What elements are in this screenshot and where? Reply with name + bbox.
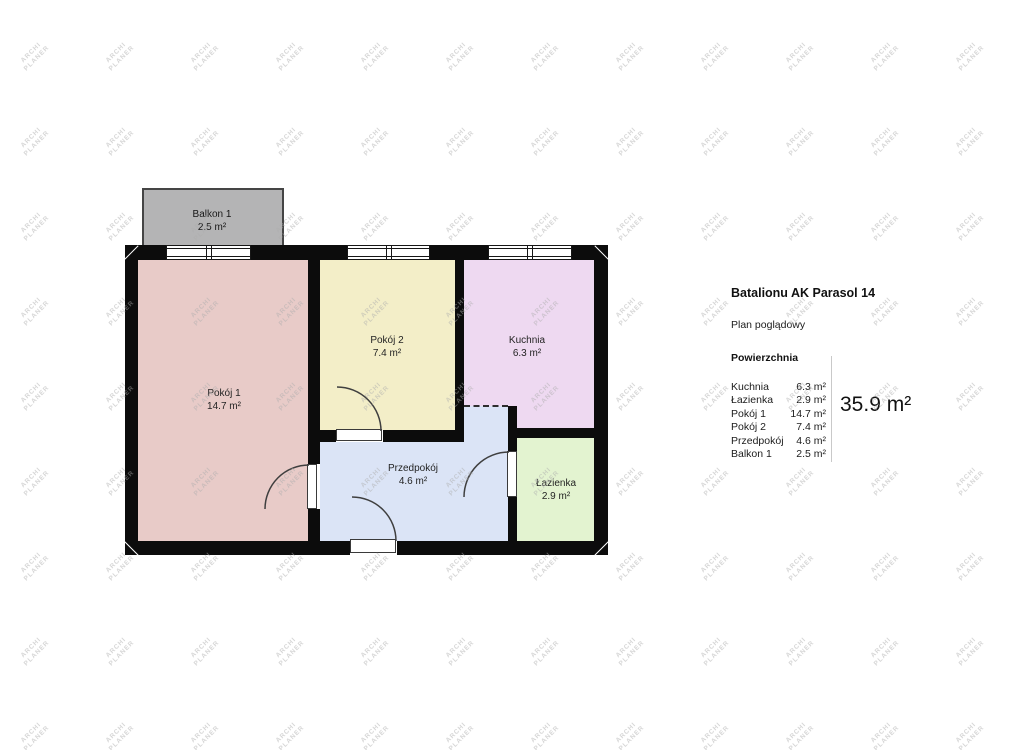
watermark: ARCHIPLANER [948,375,990,417]
watermark: ARCHIPLANER [353,630,395,672]
watermark: ARCHIPLANER [693,715,735,750]
window-mullion [211,246,212,259]
balcony-area-value: 2.5 m² [147,222,277,235]
window-frame-line [489,248,571,249]
watermark: ARCHIPLANER [608,375,650,417]
window-frame-line [348,248,429,249]
watermark: ARCHIPLANER [948,715,990,750]
watermark: ARCHIPLANER [13,35,55,77]
watermark: ARCHIPLANER [778,205,820,247]
watermark: ARCHIPLANER [948,290,990,332]
room-area: 4.6 m² [348,476,478,489]
door-leaf-pokoj2 [336,429,382,441]
watermark: ARCHIPLANER [268,35,310,77]
watermark: ARCHIPLANER [183,630,225,672]
room-name: Łazienka [491,478,621,491]
watermark: ARCHIPLANER [268,715,310,750]
area-table-row: Balkon 1 2.5 m² [731,448,826,461]
watermark: ARCHIPLANER [778,630,820,672]
watermark: ARCHIPLANER [863,545,905,587]
balcony-name: Balkon 1 [147,209,277,222]
panel-vertical-divider [831,356,832,462]
area-table-row: Kuchnia 6.3 m² [731,381,826,394]
watermark: ARCHIPLANER [948,460,990,502]
watermark: ARCHIPLANER [13,460,55,502]
watermark: ARCHIPLANER [948,205,990,247]
window-mullion [527,246,528,259]
watermark: ARCHIPLANER [608,120,650,162]
watermark: ARCHIPLANER [523,205,565,247]
label-kuchnia: Kuchnia 6.3 m² [462,335,592,360]
watermark: ARCHIPLANER [693,630,735,672]
label-przedpokoj: Przedpokój 4.6 m² [348,463,478,488]
watermark: ARCHIPLANER [863,715,905,750]
watermark: ARCHIPLANER [268,120,310,162]
wall-kuchnia-lazienka [508,428,594,438]
watermark: ARCHIPLANER [778,120,820,162]
label-lazienka: Łazienka 2.9 m² [491,478,621,503]
door-leaf-entrance [350,539,396,553]
listing-title: Batalionu AK Parasol 14 [731,286,875,300]
room-area: 7.4 m² [322,348,452,361]
floorplan-page: Balkon 1 2.5 m² [0,0,1024,750]
watermark: ARCHIPLANER [183,35,225,77]
watermark: ARCHIPLANER [778,35,820,77]
watermark: ARCHIPLANER [863,120,905,162]
area-row-value: 14.7 m² [790,408,826,421]
total-area-value: 35.9 m² [840,393,911,417]
area-table-row: Pokój 2 7.4 m² [731,421,826,434]
watermark: ARCHIPLANER [438,35,480,77]
watermark: ARCHIPLANER [608,205,650,247]
room-name: Pokój 1 [159,388,289,401]
area-row-name: Przedpokój [731,435,784,448]
watermark: ARCHIPLANER [353,715,395,750]
watermark: ARCHIPLANER [778,545,820,587]
watermark: ARCHIPLANER [523,715,565,750]
area-row-name: Pokój 1 [731,408,766,421]
watermark: ARCHIPLANER [353,205,395,247]
watermark: ARCHIPLANER [863,460,905,502]
watermark: ARCHIPLANER [98,630,140,672]
watermark: ARCHIPLANER [438,120,480,162]
watermark: ARCHIPLANER [98,120,140,162]
watermark: ARCHIPLANER [863,35,905,77]
label-pokoj2: Pokój 2 7.4 m² [322,335,452,360]
watermark: ARCHIPLANER [693,545,735,587]
watermark: ARCHIPLANER [183,715,225,750]
room-area: 2.9 m² [491,491,621,504]
watermark: ARCHIPLANER [523,630,565,672]
room-name: Pokój 2 [322,335,452,348]
area-row-value: 6.3 m² [796,381,826,394]
area-row-name: Balkon 1 [731,448,772,461]
watermark: ARCHIPLANER [13,290,55,332]
watermark: ARCHIPLANER [608,35,650,77]
window-frame-line [348,256,429,257]
room-przedpokoj-notch-fill [464,406,508,446]
watermark: ARCHIPLANER [98,35,140,77]
room-area: 14.7 m² [159,401,289,414]
area-table-row: Łazienka 2.9 m² [731,394,826,407]
watermark: ARCHIPLANER [523,120,565,162]
watermark: ARCHIPLANER [693,460,735,502]
watermark: ARCHIPLANER [948,120,990,162]
balcony-label: Balkon 1 2.5 m² [147,209,277,234]
watermark: ARCHIPLANER [608,290,650,332]
watermark: ARCHIPLANER [693,290,735,332]
door-leaf-pokoj1 [307,464,317,509]
label-pokoj1: Pokój 1 14.7 m² [159,388,289,413]
area-row-value: 2.9 m² [796,394,826,407]
watermark: ARCHIPLANER [863,630,905,672]
wall-left [125,245,138,555]
area-row-name: Kuchnia [731,381,769,394]
window-pokoj1 [166,245,251,260]
area-row-value: 2.5 m² [796,448,826,461]
watermark: ARCHIPLANER [948,630,990,672]
watermark: ARCHIPLANER [693,120,735,162]
area-table-row: Przedpokój 4.6 m² [731,435,826,448]
watermark: ARCHIPLANER [353,120,395,162]
watermark: ARCHIPLANER [778,715,820,750]
watermark: ARCHIPLANER [438,630,480,672]
watermark: ARCHIPLANER [693,35,735,77]
room-name: Kuchnia [462,335,592,348]
window-mullion [206,246,207,259]
room-area: 6.3 m² [462,348,592,361]
watermark: ARCHIPLANER [438,205,480,247]
watermark: ARCHIPLANER [13,205,55,247]
open-passage-dashed-line [464,405,508,407]
area-section-header: Powierzchnia [731,352,798,364]
wall-pokoj2-bottom [308,430,464,442]
wall-right [594,245,608,555]
window-mullion [532,246,533,259]
watermark: ARCHIPLANER [98,715,140,750]
watermark: ARCHIPLANER [13,120,55,162]
room-przedpokoj-fill [320,442,508,541]
watermark: ARCHIPLANER [13,375,55,417]
watermark: ARCHIPLANER [693,205,735,247]
watermark: ARCHIPLANER [948,545,990,587]
watermark: ARCHIPLANER [13,715,55,750]
window-kuchnia [488,245,572,260]
watermark: ARCHIPLANER [13,630,55,672]
area-row-name: Łazienka [731,394,773,407]
watermark: ARCHIPLANER [608,630,650,672]
window-pokoj2 [347,245,430,260]
watermark: ARCHIPLANER [183,120,225,162]
watermark: ARCHIPLANER [13,545,55,587]
watermark: ARCHIPLANER [608,715,650,750]
watermark: ARCHIPLANER [98,205,140,247]
watermark: ARCHIPLANER [948,35,990,77]
watermark: ARCHIPLANER [268,630,310,672]
watermark: ARCHIPLANER [693,375,735,417]
window-frame-line [167,248,250,249]
watermark: ARCHIPLANER [438,715,480,750]
window-frame-line [167,256,250,257]
watermark: ARCHIPLANER [863,205,905,247]
plan-subtitle: Plan poglądowy [731,319,805,331]
watermark: ARCHIPLANER [608,545,650,587]
area-row-value: 4.6 m² [796,435,826,448]
window-mullion [391,246,392,259]
window-mullion [386,246,387,259]
window-frame-line [489,256,571,257]
watermark: ARCHIPLANER [778,460,820,502]
room-name: Przedpokój [348,463,478,476]
watermark: ARCHIPLANER [353,35,395,77]
area-table-row: Pokój 1 14.7 m² [731,408,826,421]
watermark: ARCHIPLANER [523,35,565,77]
area-table: Kuchnia 6.3 m² Łazienka 2.9 m² Pokój 1 1… [731,381,826,461]
area-row-name: Pokój 2 [731,421,766,434]
area-row-value: 7.4 m² [796,421,826,434]
